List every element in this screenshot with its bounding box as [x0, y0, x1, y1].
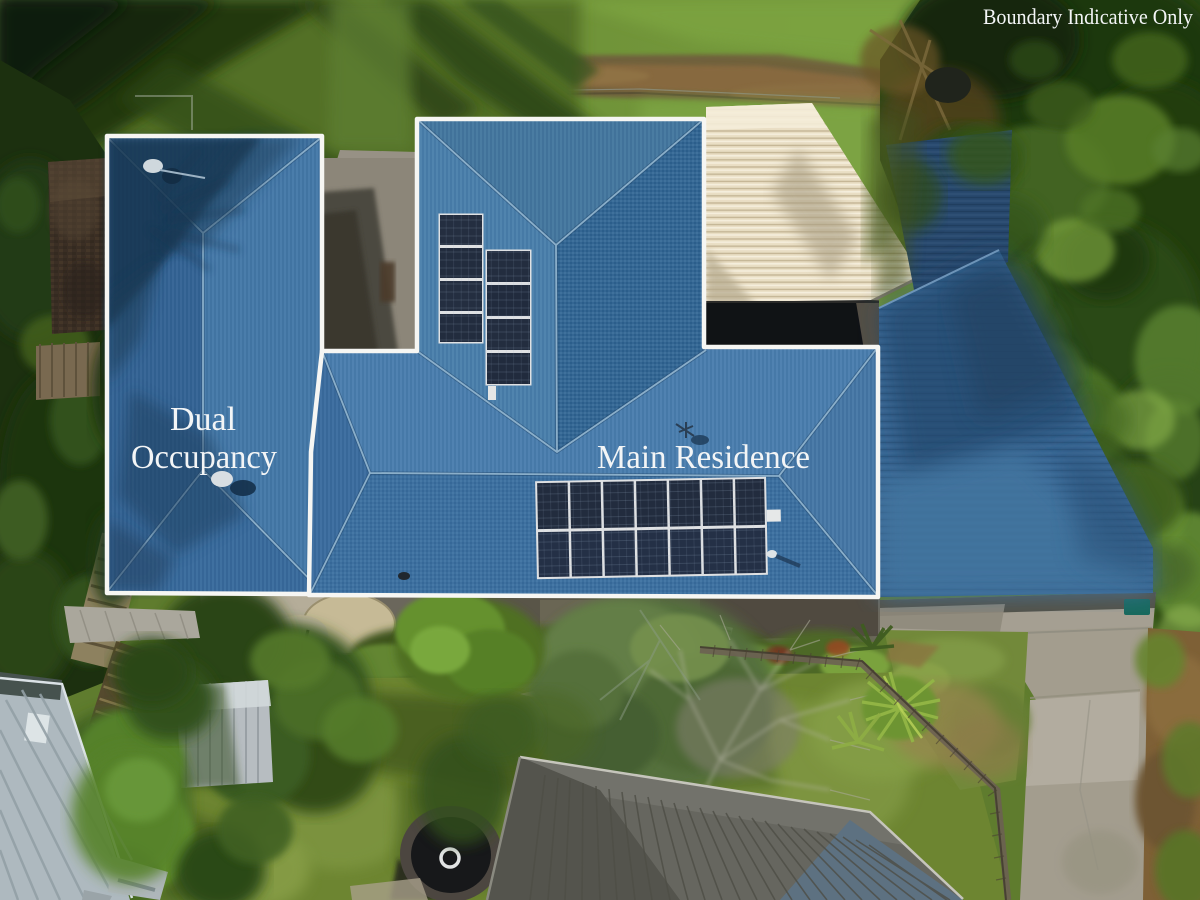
svg-text:Dual: Dual	[170, 401, 236, 438]
svg-text:Main Residence: Main Residence	[597, 439, 810, 476]
svg-text:Boundary Indicative Only: Boundary Indicative Only	[983, 4, 1193, 29]
svg-text:Occupancy: Occupancy	[131, 439, 277, 476]
